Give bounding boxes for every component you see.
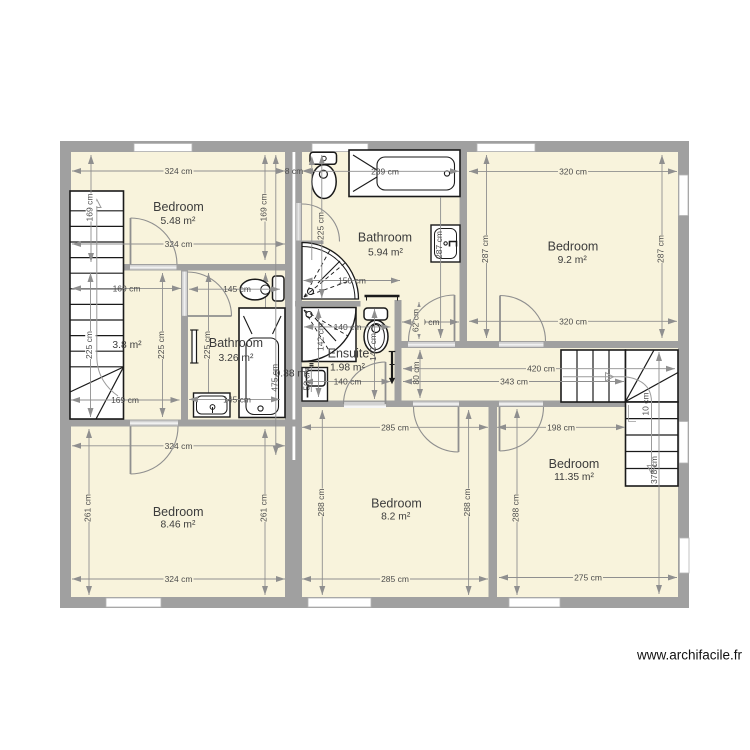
svg-text:Bathroom: Bathroom [209,336,263,350]
svg-text:www.archifacile.fr: www.archifacile.fr [636,648,743,663]
svg-text:142 cm: 142 cm [368,333,378,361]
svg-text:287 cm: 287 cm [656,235,666,263]
svg-text:198 cm: 198 cm [547,422,575,432]
svg-text:140 cm: 140 cm [334,322,362,332]
svg-text:287 cm: 287 cm [480,235,490,263]
svg-text:169 cm: 169 cm [85,194,95,222]
svg-text:275 cm: 275 cm [574,573,602,583]
svg-text:288 cm: 288 cm [462,489,472,517]
svg-text:145 cm: 145 cm [223,284,251,294]
svg-text:324 cm: 324 cm [165,166,193,176]
svg-text:324 cm: 324 cm [165,441,193,451]
svg-text:5.94 m²: 5.94 m² [368,248,403,259]
svg-text:9.2 m²: 9.2 m² [558,255,588,266]
svg-text:324 cm: 324 cm [165,574,193,584]
svg-text:320 cm: 320 cm [559,166,587,176]
svg-text:378 cm: 378 cm [649,456,659,484]
svg-text:169 cm: 169 cm [259,194,269,222]
svg-text:1.98 m²: 1.98 m² [330,363,365,374]
svg-text:Bedroom: Bedroom [371,497,422,511]
svg-text:225 cm: 225 cm [315,212,325,240]
svg-text:142 cm: 142 cm [316,323,326,351]
svg-text:3.8 m²: 3.8 m² [112,340,142,351]
svg-text:287 cm: 287 cm [434,231,444,259]
svg-text:8.2 m²: 8.2 m² [381,512,411,523]
svg-text:Bedroom: Bedroom [548,240,599,254]
svg-text:0.38 m²: 0.38 m² [275,369,310,380]
svg-text:145 cm: 145 cm [223,394,251,404]
svg-text:Bedroom: Bedroom [153,200,204,214]
svg-text:285 cm: 285 cm [381,574,409,584]
svg-text:343 cm: 343 cm [500,377,528,387]
svg-text:10 cm: 10 cm [641,392,651,415]
svg-text:Ensuite: Ensuite [328,347,370,361]
svg-text:169 cm: 169 cm [113,283,141,293]
svg-text:5.48 m²: 5.48 m² [161,216,196,227]
svg-text:420 cm: 420 cm [527,364,555,374]
svg-text:11.35 m²: 11.35 m² [554,472,594,483]
svg-text:80 cm: 80 cm [411,361,421,384]
svg-text:288 cm: 288 cm [316,489,326,517]
svg-text:225 cm: 225 cm [156,331,166,359]
svg-text:8.46 m²: 8.46 m² [161,520,196,531]
svg-text:150 cm: 150 cm [338,276,366,286]
svg-text:288 cm: 288 cm [511,494,521,522]
svg-text:8 cm: 8 cm [285,166,303,176]
svg-text:Bedroom: Bedroom [153,505,204,519]
svg-text:Bedroom: Bedroom [549,457,600,471]
svg-text:324 cm: 324 cm [165,239,193,249]
svg-text:169 cm: 169 cm [111,395,139,405]
svg-text:261 cm: 261 cm [259,494,269,522]
svg-text:239 cm: 239 cm [371,166,399,176]
svg-text:320 cm: 320 cm [559,316,587,326]
svg-text:261 cm: 261 cm [83,494,93,522]
svg-text:3.26 m²: 3.26 m² [219,353,254,364]
svg-text:Bathroom: Bathroom [358,231,412,245]
svg-text:285 cm: 285 cm [381,422,409,432]
svg-text:225 cm: 225 cm [84,331,94,359]
